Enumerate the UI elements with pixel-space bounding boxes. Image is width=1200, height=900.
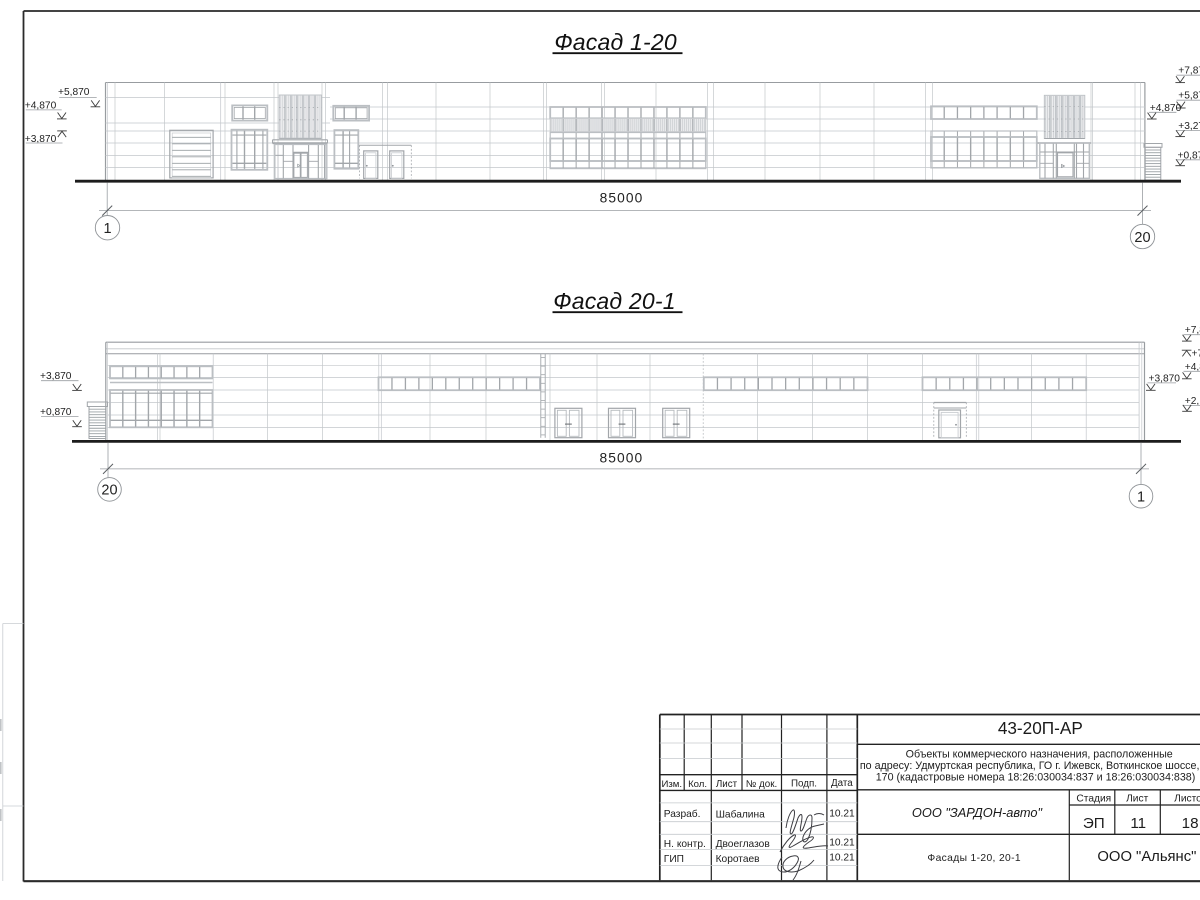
svg-text:Н. контр.: Н. контр. [664, 839, 706, 850]
svg-text:18: 18 [1182, 815, 1199, 832]
svg-text:+3,870: +3,870 [40, 371, 72, 382]
svg-text:20: 20 [101, 483, 117, 499]
svg-text:85000: 85000 [600, 191, 644, 206]
svg-text:Двоеглазов: Двоеглазов [716, 839, 770, 850]
svg-text:Подп.: Подп. [791, 778, 817, 789]
svg-text:1: 1 [103, 221, 111, 237]
svg-text:№ док.: № док. [746, 779, 777, 790]
svg-text:10.21: 10.21 [829, 837, 855, 848]
svg-text:Фасад 1-20: Фасад 1-20 [554, 29, 677, 55]
svg-text:ООО "Альянс": ООО "Альянс" [1097, 849, 1196, 865]
svg-text:Шабалина: Шабалина [716, 808, 766, 820]
svg-text:Листов: Листов [1174, 794, 1200, 805]
svg-text:Изм.: Изм. [662, 779, 683, 790]
svg-text:10.21: 10.21 [829, 852, 855, 863]
svg-text:ЭП: ЭП [1083, 815, 1105, 832]
svg-text:Лист: Лист [1126, 794, 1148, 805]
svg-text:ГИП: ГИП [664, 854, 684, 865]
svg-text:Фасады 1-20, 20-1: Фасады 1-20, 20-1 [927, 853, 1021, 864]
svg-text:+7,870: +7,870 [1178, 65, 1200, 76]
svg-text:Объекты коммерческого назначен: Объекты коммерческого назначения, распол… [906, 748, 1173, 760]
svg-text:20: 20 [1134, 230, 1150, 246]
svg-text:Стадия: Стадия [1076, 794, 1111, 805]
svg-text:43-20П-АР: 43-20П-АР [998, 718, 1083, 738]
svg-text:+5,870: +5,870 [1178, 90, 1200, 101]
svg-text:Дата: Дата [831, 778, 853, 789]
svg-text:+7,420: +7,420 [1192, 348, 1200, 359]
svg-text:Лист: Лист [716, 779, 738, 790]
svg-text:+5,870: +5,870 [58, 87, 90, 98]
svg-text:10.21: 10.21 [829, 808, 855, 819]
svg-text:Кол.: Кол. [688, 779, 707, 790]
svg-text:Фасад 20-1: Фасад 20-1 [553, 288, 676, 314]
svg-text:Коротаев: Коротаев [716, 854, 760, 865]
svg-text:11: 11 [1130, 815, 1146, 832]
svg-text:85000: 85000 [599, 451, 643, 466]
svg-text:по адресу: Удмуртская республи: по адресу: Удмуртская республика, ГО г. … [860, 760, 1200, 772]
svg-text:ООО "ЗАРДОН-авто": ООО "ЗАРДОН-авто" [912, 805, 1044, 820]
svg-text:Разраб.: Разраб. [664, 808, 701, 820]
svg-text:1: 1 [1137, 490, 1145, 506]
svg-text:170 (кадастровые номера 18:26:: 170 (кадастровые номера 18:26:030034:837… [876, 772, 1196, 784]
